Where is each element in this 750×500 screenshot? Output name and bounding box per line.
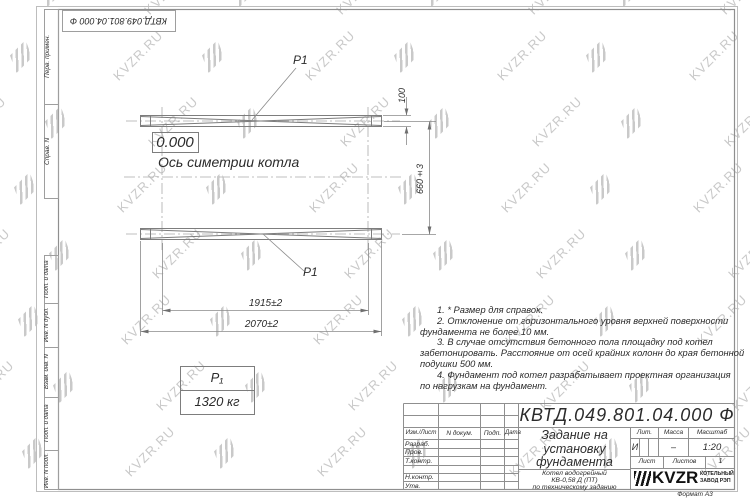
margin-label-vzam-inv: Взам. инв. N (44, 347, 58, 397)
sign-row-utv: Утв. (405, 483, 420, 490)
col-header-izm-list: Изм./Лист (404, 430, 438, 437)
margin-label-inv-dubl: Инв. N дубл. (44, 303, 58, 347)
note-line: 3. В случае отсутствия бетонного пола пл… (420, 337, 732, 348)
kvzr-logo-icon (634, 471, 651, 486)
col-header-podp: Подп. (481, 430, 504, 437)
margin-label-perv-primen: Перв. примен. (44, 9, 58, 104)
level-mark: 0.000 (152, 132, 198, 153)
listov-value: 1 (706, 458, 735, 466)
sign-row-nkontr: Н.контр. (405, 474, 434, 481)
dim-spacing: 660±3 (416, 158, 429, 200)
sign-row-razrab: Разраб. (405, 441, 430, 448)
load-point-label-bottom: Р1 (303, 266, 318, 279)
note-line: забетонировать. Расстояние от осей крайн… (420, 348, 732, 359)
format-label: Формат А3 (655, 491, 735, 498)
kvzr-logo-caption-line: КОТЕЛЬНЫЙ (700, 471, 736, 478)
note-line: 4. Фундамент под котел разрабатывает про… (420, 370, 732, 381)
drawing-sheet: KVZR.RUKVZR.RUKVZR.RUKVZR.RUKVZR.RUKVZR.… (0, 0, 750, 500)
load-table-symbol: Р₁ (180, 371, 254, 385)
list-header: Лист (631, 458, 663, 465)
col-header-data: Дата (505, 430, 518, 437)
kvzr-logo-caption-line: ЗАВОД РЭП (700, 478, 736, 485)
note-line: 2. Отклонение от горизонтального уровня … (420, 316, 732, 327)
dim-height-offset: 100 (398, 80, 411, 110)
note-line: подушки 500 мм. (420, 359, 732, 370)
margin-label-podp-data-upper: Подп. и дата (44, 255, 58, 303)
note-line: по нагрузкам на фундамент. (420, 381, 732, 392)
boiler-symmetry-axis-label: Ось симетрии котла (158, 155, 299, 170)
sign-row-prov: Пров. (405, 449, 423, 456)
margin-label-inv-podl: Инв. N подл. (44, 450, 58, 490)
kvzr-logo-caption: КОТЕЛЬНЫЙ ЗАВОД РЭП (700, 471, 736, 485)
load-point-label-top: Р1 (293, 54, 308, 67)
massa-value: – (659, 439, 688, 456)
titleblock-subtitle-line: по техническому заданию (519, 484, 630, 491)
margin-label-sprav-n: Справ. N (44, 104, 58, 199)
dim-inner-span: 1915±2 (230, 298, 301, 309)
sign-row-tkontr: Т.контр. (405, 458, 432, 465)
kvzr-logo-text: KVZR (652, 467, 698, 489)
note-line: 1. * Размер для справок. (420, 305, 732, 316)
titleblock-title-line: Задание на (519, 429, 630, 443)
notes-block: 1. * Размер для справок. 2. Отклонение о… (420, 305, 732, 391)
titleblock-doc-number: КВТД.049.801.04.000 Ф (519, 404, 735, 427)
top-stamp-doc-number: КВТД.049.801.04.000 Ф (62, 10, 175, 31)
margin-label-podp-data-lower: Подп. и дата (44, 397, 58, 450)
col-header-n-dokum: N докум. (439, 430, 480, 437)
massa-header: Масса (659, 429, 688, 436)
listov-header: Листов (664, 458, 705, 465)
titleblock-title-line: фундамента (519, 456, 630, 470)
load-table-value: 1320 кг (180, 395, 254, 409)
masshtab-header: Масштаб (689, 429, 735, 436)
dim-outer-span: 2070±2 (226, 319, 297, 330)
lit-value: И (631, 439, 639, 456)
note-line: фундамента не более 10 мм. (420, 327, 732, 338)
masshtab-value: 1:20 (689, 439, 735, 456)
lit-header: Лит. (631, 429, 658, 436)
